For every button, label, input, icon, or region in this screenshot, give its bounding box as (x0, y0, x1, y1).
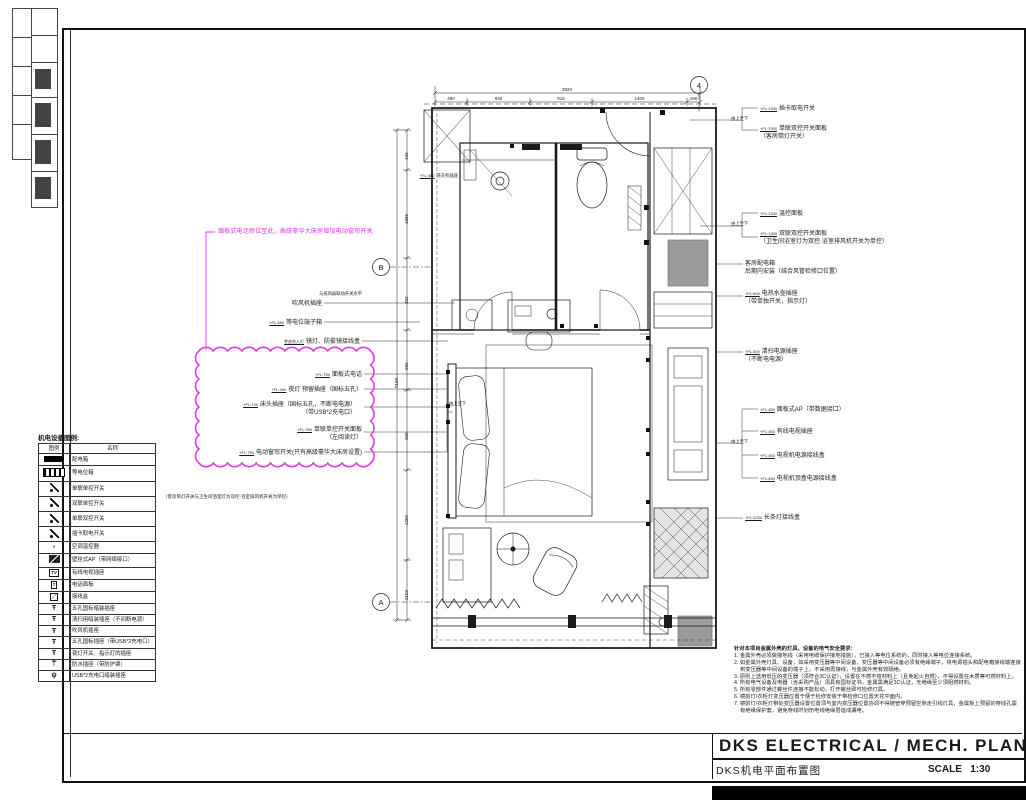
legend-row: Ŧ五孔国标插座（带USB*2充电口） (39, 637, 156, 648)
sheet-title-cn: DKS机电平面布置图 (716, 763, 821, 778)
annotation-label: +FL:750电动窗帘开关(只有高级豪华大床房设置) (239, 450, 362, 458)
shelf-cabinet (654, 292, 712, 328)
legend-row: Ŧ夜灯开关、指示灯的插座 (39, 648, 156, 659)
annotation-label: 480 (447, 96, 455, 102)
electrical-box-gray (668, 240, 708, 286)
annotation-label: 420 (404, 152, 410, 160)
legend-name: 单联单控开关 (70, 481, 156, 496)
annotation-label: +FL:1300双联双控开关面板（卫生间浴室灯为双控·浴室排风机开关为单控） (760, 231, 888, 246)
annotation-label: 客房配电箱后期内安装（结合风管检修口位置） (745, 261, 841, 276)
legend-name: 插卡取电开关 (70, 527, 156, 542)
annotation-label: +FL:450有线电视插座 (760, 429, 813, 437)
annotation-label: +FL:2200长条灯接线盒 (745, 515, 800, 523)
annotation-label: 935 (495, 96, 503, 102)
防水插座（带防护罩）-icon: ⍑ (39, 659, 70, 670)
annotation-label: +FL:380等电位端子箱 (269, 320, 322, 328)
legend-name: 夜灯开关、指示灯的插座 (70, 648, 156, 659)
legend-row: 插卡取电开关 (39, 527, 156, 542)
legend-row: 单联双控开关 (39, 512, 156, 527)
legend-name: 接线盒 (70, 591, 156, 603)
annotation-label: +FL:1300插卡取电开关 (760, 106, 815, 114)
清扫用暗装插座（不间断电源）-icon: Ŧ (39, 614, 70, 625)
接线盒-icon: ／ (39, 591, 70, 603)
legend-row: ♀空调温控器 (39, 542, 156, 553)
notes-item: 7. 镜前灯/衣柜灯带处变压器设置位置须与室内变压器位置协调不得随管穿预留空隙走… (734, 701, 1022, 715)
annotation-label: 由上至下 (449, 401, 466, 406)
annotation-label: +FL:300清扫电源插座（不断电电源） (745, 349, 798, 364)
annotation-label: +FL:400洗衣机插座 (420, 173, 458, 178)
general-notes: 针对本项目金属外壳的灯具、设备的电气安全要求：1. 金属外壳必须做接地线（采用电… (734, 646, 1022, 715)
annotation-label: 1250 (404, 515, 410, 525)
legend-table: 图例 名称 配电箱等电位箱单联单控开关双联单控开关单联双控开关插卡取电开关♀空调… (38, 443, 156, 682)
notes-item: 1. 金属外壳必须做接地线（采用电缆保护接地措施），已接入等电位系统的，同时接入… (734, 653, 1022, 660)
annotation-label: 190 (690, 96, 698, 102)
gray-block-bottom (678, 616, 712, 646)
单联单控开关-icon (39, 481, 70, 496)
curtain-left (436, 599, 520, 608)
annotation-label: 与排风扇联动开关水平 (319, 291, 362, 296)
annotation-label: +FL:450电视机顶盒电源接线盒 (760, 476, 837, 484)
legend-row: 双联单控开关 (39, 496, 156, 511)
配电箱-icon (39, 454, 70, 466)
annotation-label: +FL:900电热水壶插座（带单独开关，指示灯） (745, 291, 811, 306)
legend-name: USB*2充电口暗装插座 (70, 670, 156, 681)
dresser (443, 528, 491, 602)
五孔国标插座（带USB*2充电口）-icon: Ŧ (39, 637, 70, 648)
left-dimension-chain (393, 128, 411, 622)
notes-item: 6. 镜前灯/衣柜灯变压器应置于便于检修安装于带检修口位置天花平面内。 (734, 694, 1022, 701)
legend-name: 五孔国标暗装插座 (70, 603, 156, 614)
annotation-label: 915 (557, 96, 565, 102)
annotation-label: +FL:1300温控面板 (760, 211, 803, 219)
title-underline (712, 758, 1024, 760)
annotation-label: （客房筒灯开关与卫生间浴室灯为双控·浴室排风机开关为单控） (163, 494, 335, 500)
legend-name: 有线电视插座 (70, 567, 156, 579)
annotation-label: +FL:450面板式AP（带数据接口） (760, 407, 845, 415)
annotation-label: 7150 (394, 378, 400, 388)
scale-label: SCALE (928, 764, 962, 775)
legend-row: Ŧ五孔国标暗装插座 (39, 603, 156, 614)
legend-row: T电话面板 (39, 579, 156, 591)
notes-item: 2. 如金属外壳灯具、设备，如采用变压器等中间设备，变压器等中间设备必须有绝缘端… (734, 660, 1022, 674)
annotation-label: 4 (697, 81, 701, 90)
entry-door (606, 112, 650, 156)
legend-name: 电话面板 (70, 579, 156, 591)
titleblock-divider (712, 733, 713, 779)
minibar-hatched (654, 508, 708, 578)
legend-row: ／接线盒 (39, 591, 156, 603)
scale-value: 1:30 (970, 764, 990, 775)
wardrobe (654, 148, 712, 234)
单联双控开关-icon (39, 512, 70, 527)
annotation-label: 3920 (562, 87, 572, 93)
annotation-label: 吹风机插座 (292, 301, 322, 309)
annotation-label: 考虑合入灯镜灯、防雾镜接线盒 (284, 339, 360, 347)
夜灯开关、指示灯的插座-icon: Ŧ (39, 648, 70, 659)
annotation-label: +FL:740床头插座（国标五孔，不断电电源）（带USB*2充电口） (243, 402, 356, 417)
toilet (577, 148, 607, 208)
annotation-label: 302 (404, 296, 410, 304)
legend-name: 防水插座（带防护罩） (70, 659, 156, 670)
annotation-label: +FL:450电视机电源接线盒 (760, 453, 825, 461)
legend-name: 五孔国标插座（带USB*2充电口） (70, 637, 156, 648)
sheet-title-en: DKS ELECTRICAL / MECH. PLAN (719, 736, 1026, 756)
双联单控开关-icon (39, 496, 70, 511)
shaft (424, 110, 470, 162)
legend-title: 机电设备图例: (38, 432, 160, 442)
titleblock-line-top (62, 733, 1022, 734)
legend-name: 等电位箱 (70, 466, 156, 481)
壁挂式AP（带网络接口）-icon (39, 553, 70, 567)
有线电视插座-icon: TV (39, 567, 70, 579)
annotation-label: 由上至下 (731, 221, 748, 226)
legend-name: 空调温控器 (70, 542, 156, 553)
legend-row: Ŧ吹风机插座 (39, 626, 156, 637)
bed (448, 345, 652, 522)
legend-row: 单联单控开关 (39, 481, 156, 496)
空调温控器-icon: ♀ (39, 542, 70, 553)
window (432, 615, 716, 640)
legend-row: 壁挂式AP（带网络接口） (39, 553, 156, 567)
legend-name: 壁挂式AP（带网络接口） (70, 553, 156, 567)
legend-name: 双联单控开关 (70, 496, 156, 511)
annotation-label: 由上至下 (731, 116, 748, 121)
annotation-label: +FL:300夜灯 预留插座（国标五孔） (272, 387, 362, 395)
tv-console (668, 348, 708, 480)
leader-lines-right (690, 108, 758, 518)
legend-col-symbol: 图例 (39, 444, 70, 454)
washing-machine (491, 172, 509, 190)
lounge-chair (530, 544, 581, 599)
annotation-label: 260 (404, 432, 410, 440)
legend-row: 配电箱 (39, 454, 156, 466)
bathroom (432, 143, 650, 334)
annotation-label: 1865 (404, 214, 410, 224)
scale-row: SCALE 1:30 (928, 764, 990, 775)
annotation-label: 950 (404, 362, 410, 370)
annotation-label: +FL:750面板式电话 (315, 372, 362, 380)
floor-lamp (497, 533, 529, 565)
annotation-label: A (378, 598, 383, 607)
annotation-label: +FL:750单联单控开关面板（左阅读灯） (297, 427, 362, 442)
插卡取电开关-icon (39, 527, 70, 542)
annotation-label: +FL:1300单联双控开关面板（客房筒灯开关） (760, 126, 827, 141)
五孔国标暗装插座-icon: Ŧ (39, 603, 70, 614)
bottom-black-bar (712, 786, 1026, 800)
annotation-label: 1400 (634, 96, 644, 102)
annotation-label: 由上至下 (731, 439, 748, 444)
legend-row: Ŧ清扫用暗装插座（不间断电源） (39, 614, 156, 625)
legend-name: 清扫用暗装插座（不间断电源） (70, 614, 156, 625)
notes-title: 针对本项目金属外壳的灯具、设备的电气安全要求： (734, 646, 1022, 653)
annotation-label: 面板式电话移位至此，高级豪华大床房增加电动窗帘开关 (218, 228, 373, 236)
legend: 机电设备图例: 图例 名称 配电箱等电位箱单联单控开关双联单控开关单联双控开关插… (38, 432, 160, 682)
legend-row: 等电位箱 (39, 466, 156, 481)
drawing-sheet: 机电设备图例: 图例 名称 配电箱等电位箱单联单控开关双联单控开关单联双控开关插… (0, 0, 1026, 800)
USB*2充电口暗装插座-icon: ψ (39, 670, 70, 681)
等电位箱-icon (39, 466, 70, 481)
legend-name: 单联双控开关 (70, 512, 156, 527)
annotation-label: 2103 (404, 590, 410, 600)
电话面板-icon: T (39, 579, 70, 591)
nightstand (452, 300, 492, 330)
legend-row: ⍑防水插座（带防护罩） (39, 659, 156, 670)
curtain-right (602, 594, 642, 602)
legend-row: ψUSB*2充电口暗装插座 (39, 670, 156, 681)
吹风机插座-icon: Ŧ (39, 626, 70, 637)
legend-name: 配电箱 (70, 454, 156, 466)
legend-row: TV有线电视插座 (39, 567, 156, 579)
annotation-label: B (378, 263, 383, 272)
legend-col-name: 名称 (70, 444, 156, 454)
legend-name: 吹风机插座 (70, 626, 156, 637)
